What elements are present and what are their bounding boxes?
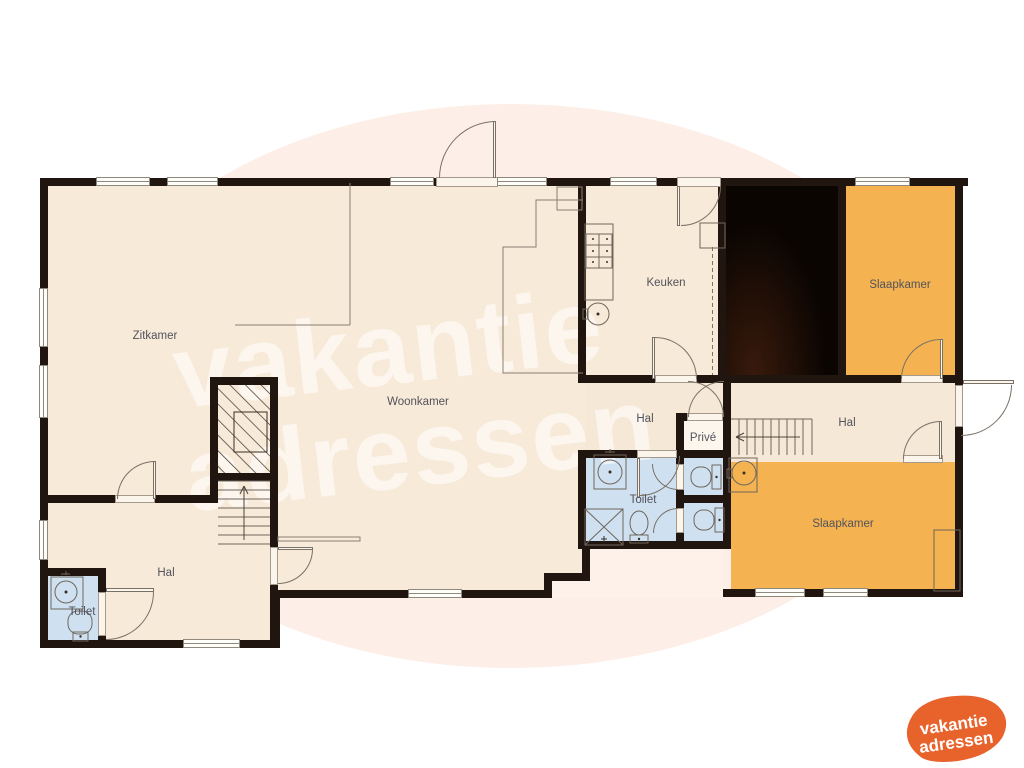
door-leaf (677, 186, 680, 226)
floorplan-page: vakantie adressen (0, 0, 1024, 768)
wall (270, 590, 280, 648)
wall (955, 455, 963, 597)
door-opening-toilet-left (98, 592, 106, 636)
label-slaapkamer-top: Slaapkamer (869, 279, 930, 291)
window (39, 365, 48, 418)
door-opening-front (436, 177, 498, 187)
label-hal-left: Hal (157, 567, 174, 579)
wall (838, 182, 846, 380)
window (855, 177, 910, 186)
wall (210, 473, 278, 481)
wall (582, 541, 731, 549)
wall (210, 377, 218, 503)
window (408, 589, 462, 598)
door-opening-woonkamer (270, 547, 278, 585)
window (96, 177, 150, 186)
label-zitkamer: Zitkamer (133, 330, 178, 342)
window (183, 639, 240, 648)
window (755, 588, 805, 597)
label-toilet-left: Toilet (69, 606, 96, 618)
window (39, 288, 48, 347)
label-slaapkamer-bottom: Slaapkamer (812, 518, 873, 530)
label-hal-right: Hal (838, 417, 855, 429)
label-keuken: Keuken (646, 277, 685, 289)
wall (723, 375, 731, 549)
brand-logo: vakantie adressen (896, 692, 1018, 764)
label-hal-middle: Hal (636, 413, 653, 425)
window (823, 588, 868, 597)
outside-notch (590, 549, 723, 598)
void-black-area (723, 182, 846, 380)
window (610, 177, 657, 186)
wall (578, 182, 586, 383)
wall (40, 640, 280, 648)
label-toilet-middle: Toilet (630, 494, 657, 506)
wall (210, 377, 278, 385)
window (497, 177, 547, 186)
label-woonkamer: Woonkamer (387, 396, 449, 408)
label-prive: Privé (690, 432, 716, 444)
wall (578, 450, 586, 549)
wall (718, 182, 726, 380)
window (39, 520, 48, 560)
wall (676, 495, 731, 503)
door-arc-right-exterior (961, 385, 1012, 436)
window (167, 177, 218, 186)
window (390, 177, 434, 186)
wall (40, 568, 106, 576)
door-leaf (963, 380, 1014, 384)
wall (955, 178, 963, 385)
